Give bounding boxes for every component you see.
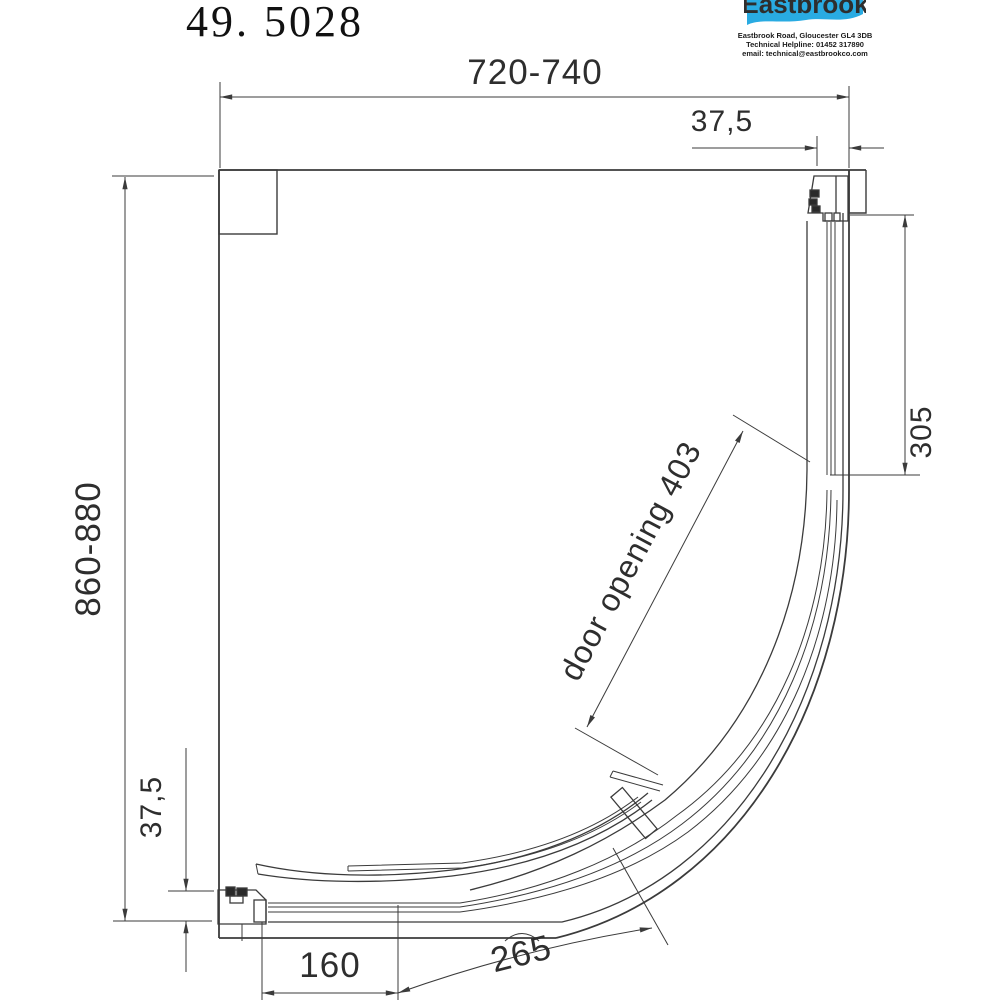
technical-drawing: 720-740 37,5 305 860-880 37,5 160 265 do… xyxy=(0,0,1000,1000)
dimension-curved-panel xyxy=(398,848,668,993)
glass-curve-inner xyxy=(268,490,827,903)
label-side-panel: 305 xyxy=(905,405,938,458)
curved-rails-and-front-panel xyxy=(268,470,843,922)
door-leading-edge-bracket xyxy=(610,771,663,791)
extension-line xyxy=(733,415,810,462)
corner-post-top-left xyxy=(219,170,277,234)
profile-clamp xyxy=(237,888,247,896)
tray-front-curve xyxy=(556,490,849,938)
dimension-bottom-offset xyxy=(168,748,214,972)
sliding-door xyxy=(256,771,663,881)
side-panel-right xyxy=(807,213,843,490)
door-glass-line xyxy=(348,802,641,871)
wall-profile-top-right xyxy=(808,176,848,221)
dimension-top-offset xyxy=(692,136,884,166)
label-bottom-offset: 37,5 xyxy=(135,776,168,838)
profile-foot xyxy=(254,900,266,922)
enclosure-outline xyxy=(219,170,866,938)
profile-foot xyxy=(825,213,832,221)
glass-curve-outer xyxy=(268,500,837,912)
drawing-sheet: 49. 5028 Eastbrook Eastbrook Road, Glouc… xyxy=(0,0,1000,1000)
wall-profile-bottom-left xyxy=(218,887,266,941)
rail-frame-curve xyxy=(268,490,843,922)
profile-clamp xyxy=(810,190,819,197)
label-top-offset: 37,5 xyxy=(691,105,753,138)
corner-notch-top-right xyxy=(849,170,866,213)
door-end-cap xyxy=(256,864,258,874)
label-depth: 860-880 xyxy=(69,481,108,616)
dimension-labels: 720-740 37,5 305 860-880 37,5 160 265 do… xyxy=(69,53,938,985)
profile-clamp xyxy=(812,206,820,212)
profile-foot xyxy=(834,213,840,221)
label-front-return: 160 xyxy=(299,946,360,985)
profile-clamp xyxy=(809,199,817,205)
label-curved-panel: 265 xyxy=(487,927,556,980)
profile-clamp xyxy=(226,887,235,896)
dimension-width xyxy=(220,82,849,168)
glass-curve-mid xyxy=(268,490,831,907)
door-glass-line xyxy=(348,797,638,866)
dimension-annotations xyxy=(112,82,920,1000)
label-door-opening: door opening 403 xyxy=(552,435,708,686)
label-width: 720-740 xyxy=(467,53,602,92)
profile-clamp-housing xyxy=(230,896,243,903)
extension-line xyxy=(613,848,668,945)
extension-line xyxy=(575,728,658,775)
